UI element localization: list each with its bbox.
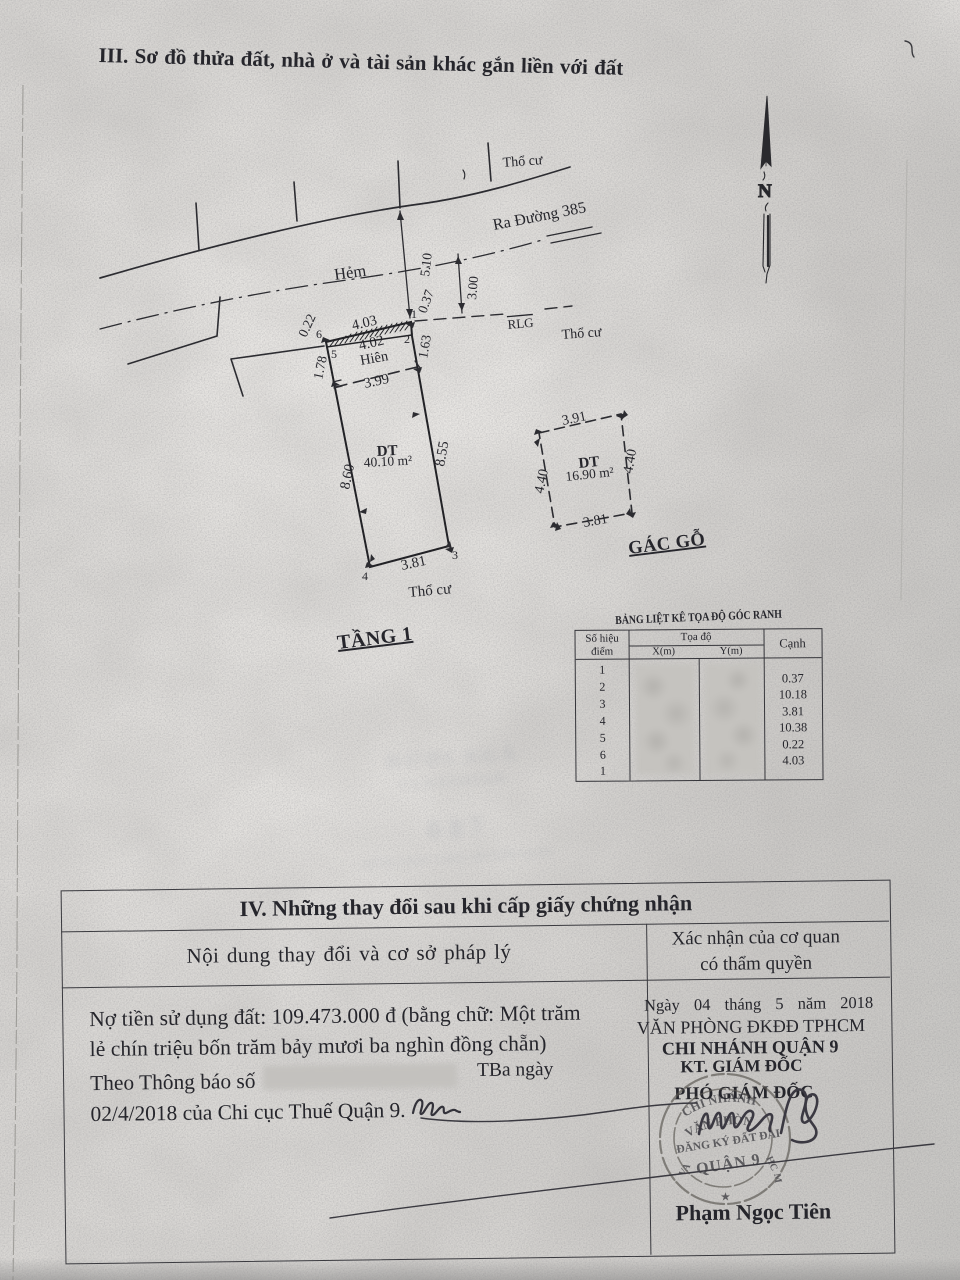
svg-text:M: M — [771, 1173, 784, 1185]
svg-text:VĂN PHÒNG: VĂN PHÒNG — [0, 0, 753, 1140]
svg-text:QUẬN 9: QUẬN 9 — [695, 1150, 762, 1178]
svg-text:★: ★ — [721, 1192, 730, 1203]
